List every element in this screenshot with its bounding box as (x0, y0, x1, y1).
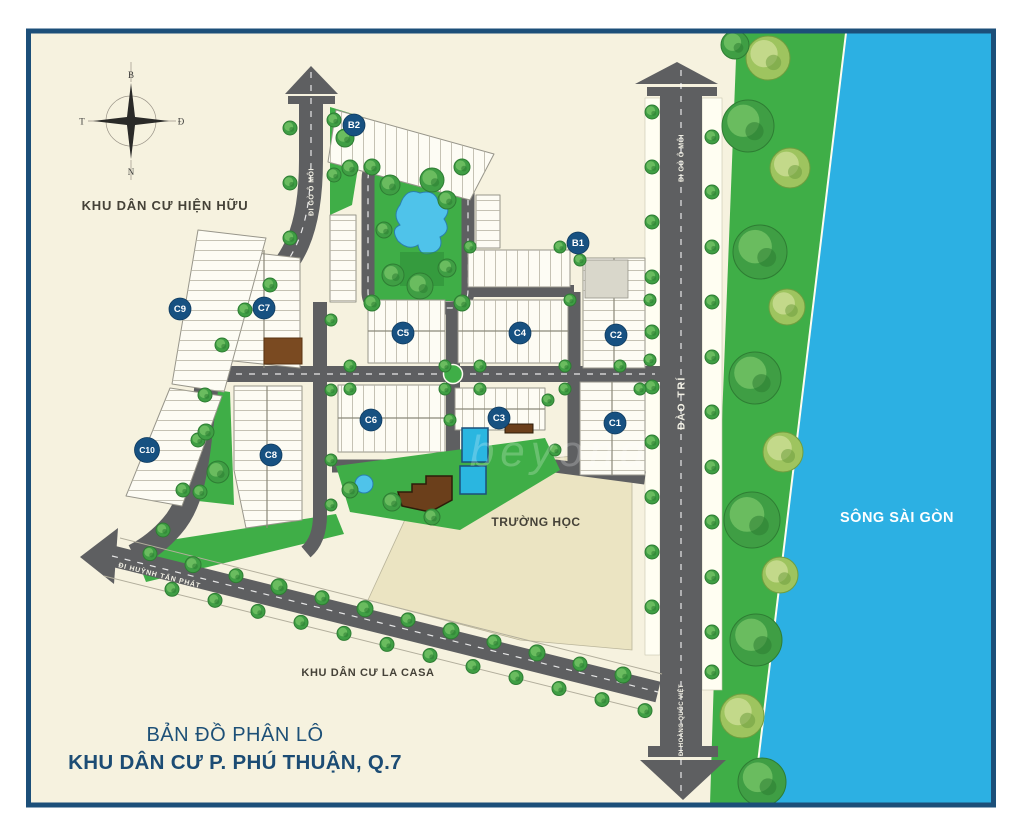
compass-south: N (128, 167, 135, 177)
tree-icon (645, 215, 659, 229)
block-badge-b1: B1 (567, 232, 589, 254)
tree-icon (634, 383, 646, 395)
tree-icon (376, 222, 392, 238)
tree-icon (645, 490, 659, 504)
tree-icon (193, 485, 207, 499)
tree-icon (327, 168, 341, 182)
label-la-casa: KHU DÂN CƯ LA CASA (301, 666, 434, 679)
tree-icon (474, 360, 486, 372)
label-school: TRƯỜNG HỌC (491, 514, 580, 529)
tree-icon (554, 241, 566, 253)
tree-icon (645, 600, 659, 614)
tree-icon (645, 160, 659, 174)
label-road-go-o-moi-right: ĐI GÒ Ô MÔI (677, 134, 686, 182)
tree-icon (454, 295, 470, 311)
tree-icon (294, 615, 308, 629)
badge-label: C7 (258, 303, 270, 314)
tree-icon (542, 394, 554, 406)
tree-icon (487, 635, 501, 649)
tree-icon (439, 360, 451, 372)
tree-icon (644, 294, 656, 306)
tree-icon (325, 384, 337, 396)
tree-icon (176, 483, 190, 497)
tree-icon (283, 176, 297, 190)
tree-icon (645, 325, 659, 339)
label-road-dao-tri: ĐÀO TRÍ (675, 376, 688, 430)
tree-icon (729, 352, 781, 404)
tree-icon (645, 105, 659, 119)
tree-icon (207, 461, 229, 483)
tree-icon (229, 569, 243, 583)
tree-icon (705, 665, 719, 679)
tree-icon (614, 360, 626, 372)
tree-icon (420, 168, 444, 192)
tree-icon (730, 614, 782, 666)
compass-north: B (128, 70, 134, 80)
tree-icon (564, 294, 576, 306)
tree-icon (271, 579, 287, 595)
label-road-hoang-quoc-viet: ĐI HOÀNG QUỐC VIỆT (677, 684, 685, 756)
block-badge-c6: C6 (360, 409, 382, 431)
tree-icon (769, 289, 805, 325)
map-canvas: B2B1C2C5C4C6C3C1C9C7C10C8 beyond KHU DÂN… (0, 0, 1024, 833)
lot-lines (330, 215, 356, 302)
tree-icon (438, 259, 456, 277)
tree-icon (283, 121, 297, 135)
tree-icon (382, 264, 404, 286)
commercial-building (264, 338, 302, 364)
badge-label: C4 (514, 328, 527, 339)
tree-icon (344, 383, 356, 395)
label-road-go-o-moi-left: ĐI GÒ Ô MÔI (307, 168, 316, 216)
block-badge-c3: C3 (488, 407, 510, 429)
tree-icon (423, 648, 437, 662)
tree-icon (645, 545, 659, 559)
tree-icon (454, 159, 470, 175)
tree-icon (424, 509, 440, 525)
tree-icon (721, 31, 749, 59)
tree-icon (705, 240, 719, 254)
compass-east: Đ (178, 117, 185, 127)
label-river: SÔNG SÀI GÒN (840, 508, 954, 526)
map-title-line1: BẢN ĐỒ PHÂN LÔ (146, 722, 323, 746)
tree-icon (509, 671, 523, 685)
tree-icon (238, 303, 252, 317)
tree-icon (263, 278, 277, 292)
badge-label: C6 (365, 415, 377, 426)
tree-icon (344, 360, 356, 372)
lot-lines (468, 250, 570, 287)
tree-icon (185, 557, 201, 573)
tree-icon (315, 591, 329, 605)
block-badge-c10: C10 (135, 438, 160, 463)
badge-label: C2 (610, 330, 622, 341)
tree-icon (444, 414, 456, 426)
tree-icon (720, 694, 764, 738)
map-title-line2: KHU DÂN CƯ P. PHÚ THUẬN, Q.7 (68, 750, 402, 774)
tree-icon (705, 350, 719, 364)
lot-lines (476, 195, 500, 248)
tree-icon (443, 623, 459, 639)
tree-icon (573, 657, 587, 671)
tree-icon (722, 100, 774, 152)
tree-icon (165, 582, 179, 596)
block-badge-c8: C8 (260, 444, 282, 466)
badge-label: C10 (139, 445, 155, 455)
tree-icon (762, 557, 798, 593)
tree-icon (325, 499, 337, 511)
tree-icon (705, 515, 719, 529)
tree-icon (143, 547, 157, 561)
block-badge-b2: B2 (343, 114, 365, 136)
tree-icon (770, 148, 810, 188)
tree-icon (198, 424, 214, 440)
tree-icon (529, 645, 545, 661)
badge-label: B1 (572, 238, 585, 249)
tree-icon (705, 405, 719, 419)
tree-icon (364, 159, 380, 175)
tree-icon (705, 570, 719, 584)
tree-icon (383, 493, 401, 511)
tree-icon (439, 383, 451, 395)
tree-icon (407, 273, 433, 299)
tree-icon (283, 231, 297, 245)
tree-icon (342, 482, 358, 498)
tree-icon (364, 295, 380, 311)
badge-label: C9 (174, 304, 186, 315)
tree-icon (559, 360, 571, 372)
block-badge-c9: C9 (169, 298, 191, 320)
tree-icon (763, 432, 803, 472)
tree-icon (552, 682, 566, 696)
tree-icon (746, 36, 790, 80)
badge-label: C3 (493, 413, 505, 424)
tree-icon (466, 659, 480, 673)
badge-label: C5 (397, 328, 410, 339)
tree-icon (705, 625, 719, 639)
block-badge-c5: C5 (392, 322, 414, 344)
block-badge-c4: C4 (509, 322, 531, 344)
watermark: beyond (470, 427, 650, 476)
tree-icon (644, 354, 656, 366)
tree-icon (464, 241, 476, 253)
tree-icon (208, 593, 222, 607)
tree-icon (705, 295, 719, 309)
tree-icon (438, 191, 456, 209)
tree-icon (251, 604, 265, 618)
block-badge-c2: C2 (605, 324, 627, 346)
tree-icon (337, 626, 351, 640)
utility-lot (585, 260, 628, 298)
badge-label: B2 (348, 120, 360, 131)
compass-west: T (79, 117, 85, 127)
tree-icon (645, 380, 659, 394)
tree-icon (595, 693, 609, 707)
tree-icon (325, 454, 337, 466)
tree-icon (342, 160, 358, 176)
tree-icon (705, 460, 719, 474)
tree-icon (327, 113, 341, 127)
tree-icon (357, 601, 373, 617)
tree-icon (156, 523, 170, 537)
badge-label: C8 (265, 450, 277, 461)
tree-icon (724, 492, 780, 548)
tree-icon (325, 314, 337, 326)
label-existing-area: KHU DÂN CƯ HIỆN HỮU (82, 198, 249, 213)
tree-icon (401, 613, 415, 627)
tree-icon (474, 383, 486, 395)
tree-icon (198, 388, 212, 402)
tree-icon (638, 704, 652, 718)
tree-icon (380, 175, 400, 195)
tree-icon (705, 185, 719, 199)
tree-icon (559, 383, 571, 395)
subdivision-map: B2B1C2C5C4C6C3C1C9C7C10C8 beyond KHU DÂN… (0, 0, 1024, 833)
block-badge-c7: C7 (253, 297, 275, 319)
tree-icon (645, 270, 659, 284)
tree-icon (380, 637, 394, 651)
tree-icon (733, 225, 787, 279)
tree-icon (738, 758, 786, 806)
tree-icon (574, 254, 586, 266)
north-arrow-collar (647, 87, 717, 96)
tree-icon (615, 667, 631, 683)
tree-icon (215, 338, 229, 352)
tree-icon (705, 130, 719, 144)
